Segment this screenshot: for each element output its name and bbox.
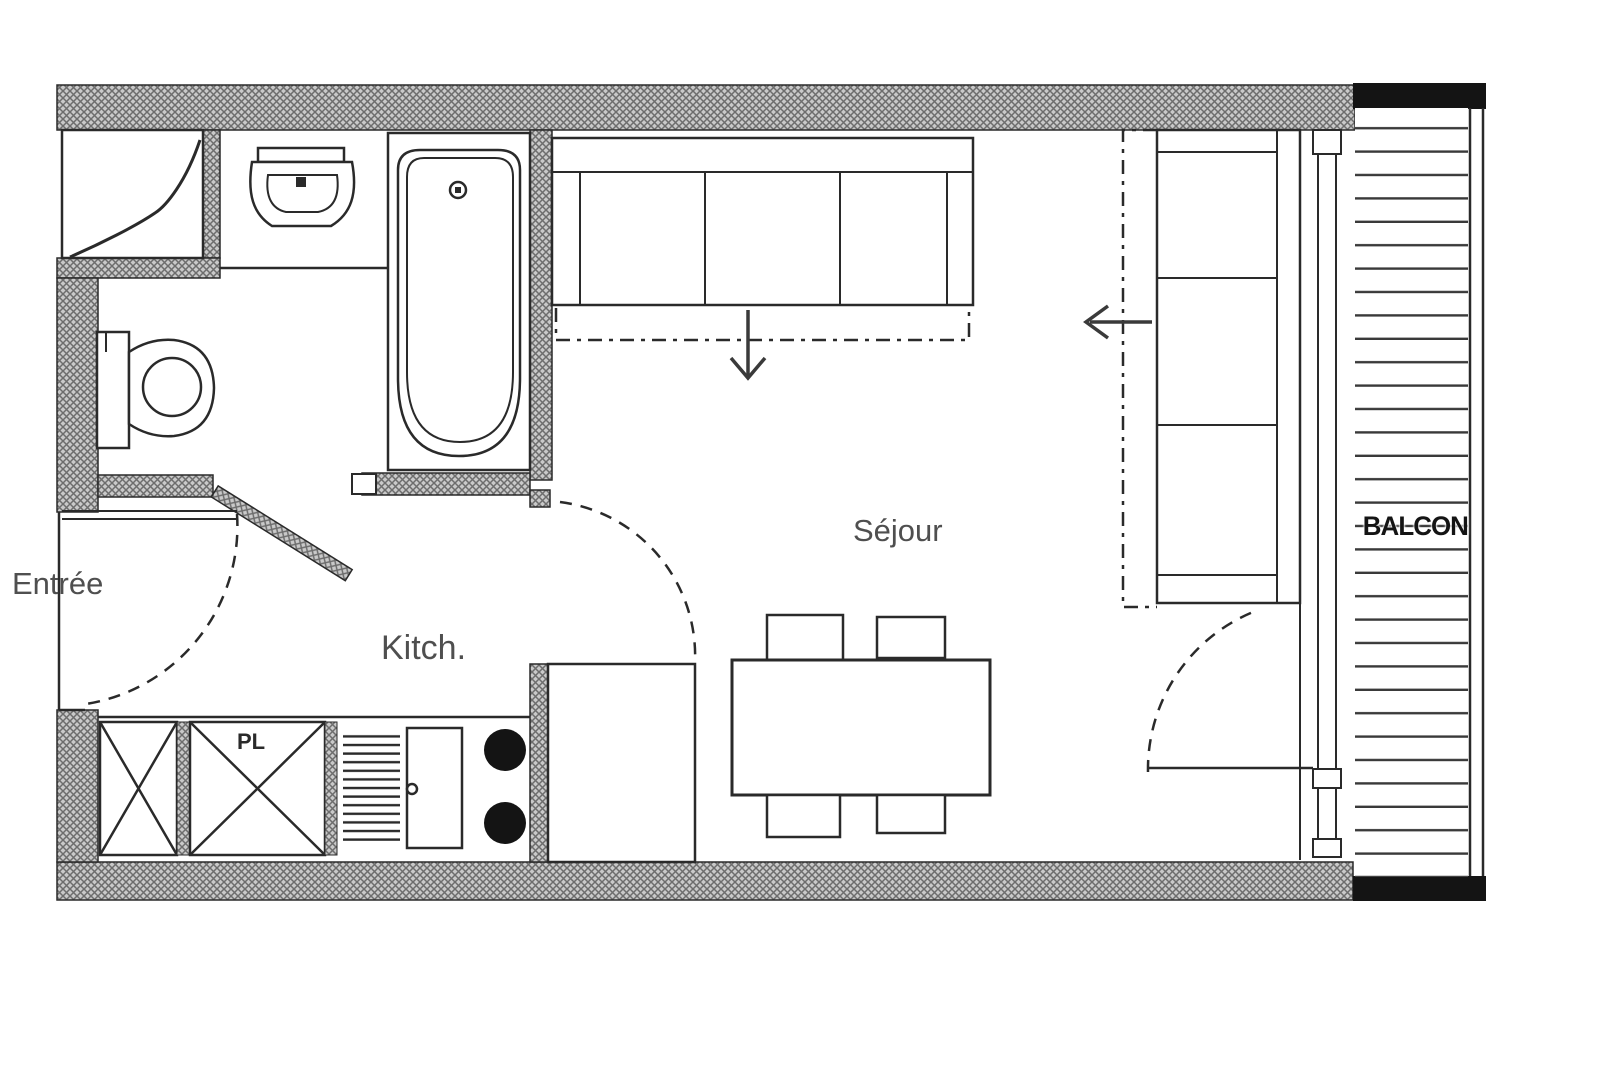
kitchen-rack-icon	[343, 732, 400, 844]
window-mullion-top	[1313, 130, 1341, 154]
washbasin-bowl-outer	[250, 162, 354, 226]
balcony	[1355, 108, 1483, 877]
window-mullion-bottom	[1313, 839, 1341, 857]
closet-outline	[62, 130, 203, 258]
wall-below-closet	[57, 258, 220, 278]
wall-left-lower	[57, 710, 98, 862]
window-mullion-mid	[1313, 769, 1341, 788]
wall-top	[57, 85, 1355, 130]
kitchen-peninsula-counter	[548, 664, 695, 862]
entry-door-swing-arc	[86, 514, 237, 704]
toilet-tank	[97, 332, 129, 448]
wall-step-block	[530, 490, 550, 507]
balcony-door-swing-arc	[1148, 612, 1253, 772]
room-label-kitchen: Kitch.	[381, 629, 466, 668]
bathtub-icon	[388, 133, 530, 470]
chair-icon-3	[767, 795, 840, 837]
chair-icon	[767, 615, 843, 660]
wall-closet-divider	[203, 130, 220, 258]
kitchen-divider-2	[325, 722, 337, 855]
bathtub-tap-dot	[455, 187, 461, 193]
balcony-bottom-bar	[1353, 876, 1486, 901]
dining-table-icon	[732, 660, 990, 795]
entry	[59, 511, 237, 710]
toilet-icon	[97, 332, 214, 448]
kitchen-door-handle	[407, 784, 417, 794]
kitchen-divider-1	[177, 722, 190, 855]
wall-below-toilet	[98, 475, 213, 497]
washbasin-rim	[258, 148, 344, 162]
floor-plan: Entrée Kitch. Séjour PL BALCON	[0, 0, 1606, 1070]
washbasin-tap	[296, 177, 306, 187]
kitchen-door-swing-arc	[560, 502, 695, 662]
sofa-top-outline	[552, 138, 973, 305]
room-label-balcony: BALCON	[1352, 511, 1479, 542]
sofa-bed-right-icon	[1086, 130, 1300, 607]
wall-below-bathtub	[362, 473, 530, 495]
bathtub-outline	[388, 133, 530, 470]
sofa-right-foldout-outline	[1123, 130, 1157, 607]
chair-icon-2	[877, 617, 945, 658]
room-label-living: Séjour	[853, 513, 943, 549]
hob-burner-icon	[484, 729, 526, 771]
closet-room	[62, 130, 203, 258]
chair-icon-4	[877, 795, 945, 833]
sofa-top-foldout-outline	[556, 308, 969, 340]
sofa-right-outline	[1157, 130, 1300, 603]
door-jamb-block	[352, 474, 376, 494]
washbasin-icon	[250, 148, 354, 226]
wall-kitchen-stub	[530, 664, 548, 862]
dining-set	[732, 615, 990, 837]
balcony-decking-icon	[1355, 108, 1468, 877]
wall-left-upper	[57, 278, 98, 512]
kitchen	[98, 502, 695, 862]
sofa-bed-top-icon	[552, 138, 973, 378]
closet-label-pl: PL	[237, 729, 265, 755]
hob-burner-icon-2	[484, 802, 526, 844]
wall-bottom	[57, 862, 1353, 900]
room-label-entree: Entrée	[12, 566, 103, 602]
balcony-top-bar	[1353, 83, 1486, 109]
wall-bathroom-right	[530, 130, 552, 480]
